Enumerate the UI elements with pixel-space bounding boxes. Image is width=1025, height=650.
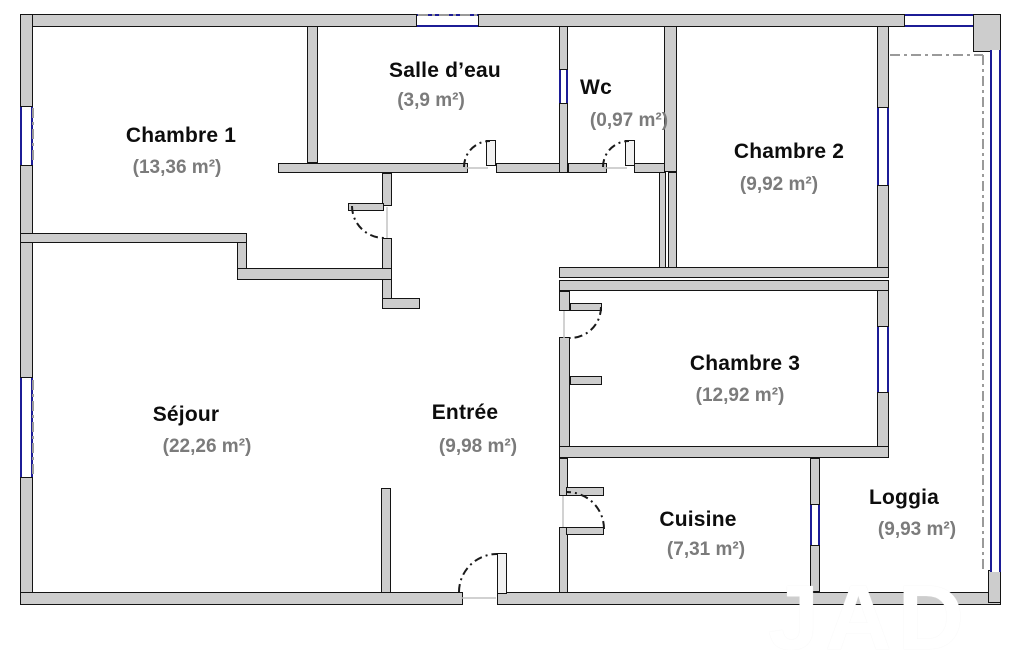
room-area-cuisine: (7,31 m²): [667, 539, 745, 561]
wall-segment: [988, 570, 1001, 603]
loggia-boundary-dash: [33, 15, 983, 570]
wall-segment: [20, 233, 247, 243]
wall-segment: [566, 527, 604, 535]
wall-segment: [566, 487, 604, 496]
wall-segment: [559, 103, 568, 173]
room-area: (22,26 m²): [163, 436, 252, 458]
door-arcs-layer: [0, 0, 1025, 650]
room-area: (9,92 m²): [740, 174, 818, 196]
room-name: Entrée: [432, 401, 499, 425]
room-area: (12,92 m²): [696, 385, 785, 407]
room-area-wc: (0,97 m²): [590, 110, 668, 132]
wall-segment: [570, 303, 602, 311]
door-arc-chambre3: [570, 307, 601, 338]
door-leaf: [486, 140, 496, 166]
room-label-chambre-2: Chambre 2: [734, 140, 844, 164]
room-area-entree: (9,98 m²): [439, 436, 517, 458]
room-area-sejour: (22,26 m²): [163, 436, 252, 458]
room-label-salle-deau: Salle d’eau: [389, 59, 501, 83]
wall-segment: [20, 592, 463, 605]
wall-segment: [559, 280, 889, 291]
wall-segment: [348, 203, 384, 211]
room-area-salle-deau: (3,9 m²): [397, 90, 465, 112]
room-area-chambre-1: (13,36 m²): [133, 157, 222, 179]
room-label-loggia: Loggia: [869, 486, 939, 510]
room-label-sejour: Séjour: [153, 403, 220, 427]
wall-segment: [659, 172, 666, 272]
wall-segment: [877, 26, 889, 108]
door-arc-entry: [459, 554, 497, 592]
wall-segment: [559, 267, 889, 278]
room-label-chambre-1: Chambre 1: [126, 124, 236, 148]
window: [877, 327, 889, 392]
room-name: Salle d’eau: [389, 59, 501, 83]
window: [559, 70, 568, 103]
room-name: Chambre 2: [734, 140, 844, 164]
wall-segment: [278, 163, 468, 173]
wall-segment: [497, 592, 1001, 605]
wall-segment: [664, 26, 677, 172]
window: [417, 14, 478, 27]
window: [20, 378, 33, 477]
wall-segment: [559, 337, 570, 447]
window: [990, 50, 1001, 572]
wall-segment: [382, 173, 392, 206]
door-swing-arcs: [352, 141, 629, 592]
window: [20, 107, 33, 165]
window: [810, 505, 820, 545]
wall-segment: [973, 14, 1001, 52]
room-area: (0,97 m²): [590, 110, 668, 132]
wall-segment: [20, 477, 33, 605]
room-label-chambre-3: Chambre 3: [690, 352, 800, 376]
wall-segment: [382, 298, 420, 309]
wall-segment: [20, 14, 417, 27]
wall-segment: [237, 268, 392, 280]
room-name: Cuisine: [659, 508, 736, 532]
wall-segment: [20, 165, 33, 378]
room-name: Wc: [580, 76, 612, 100]
room-area: (3,9 m²): [397, 90, 465, 112]
floor-plan: Chambre 1 (13,36 m²) Salle d’eau (3,9 m²…: [0, 0, 1025, 650]
room-label-wc: Wc: [580, 76, 612, 100]
room-area: (7,31 m²): [667, 539, 745, 561]
door-leaf: [625, 140, 635, 166]
wall-segment: [559, 26, 568, 70]
wall-segment: [877, 185, 889, 278]
wall-segment: [668, 172, 677, 272]
wall-segment: [20, 14, 33, 107]
wall-segment: [307, 26, 318, 163]
wall-segment: [381, 488, 391, 593]
room-area: (9,98 m²): [439, 436, 517, 458]
room-name: Chambre 3: [690, 352, 800, 376]
door-leaf: [497, 553, 507, 594]
room-name: Séjour: [153, 403, 220, 427]
room-area-chambre-2: (9,92 m²): [740, 174, 818, 196]
room-label-cuisine: Cuisine: [659, 508, 736, 532]
wall-segment: [810, 545, 820, 592]
window: [905, 14, 973, 27]
wall-segment: [559, 527, 568, 593]
door-arc-cuisine: [567, 492, 604, 529]
wall-segment: [478, 14, 905, 27]
wall-segment: [570, 376, 602, 385]
wall-segment: [559, 291, 570, 311]
wall-segment: [496, 163, 560, 173]
window: [877, 108, 889, 185]
room-area-loggia: (9,93 m²): [878, 519, 956, 541]
wall-segment: [634, 163, 665, 173]
room-area: (13,36 m²): [133, 157, 222, 179]
room-label-entree: Entrée: [432, 401, 499, 425]
watermark: JAD: [768, 566, 970, 650]
room-name: Loggia: [869, 486, 939, 510]
wall-segment: [568, 163, 607, 173]
room-area: (9,93 m²): [878, 519, 956, 541]
wall-segment: [559, 446, 889, 458]
room-area-chambre-3: (12,92 m²): [696, 385, 785, 407]
room-name: Chambre 1: [126, 124, 236, 148]
wall-segment: [810, 458, 820, 505]
